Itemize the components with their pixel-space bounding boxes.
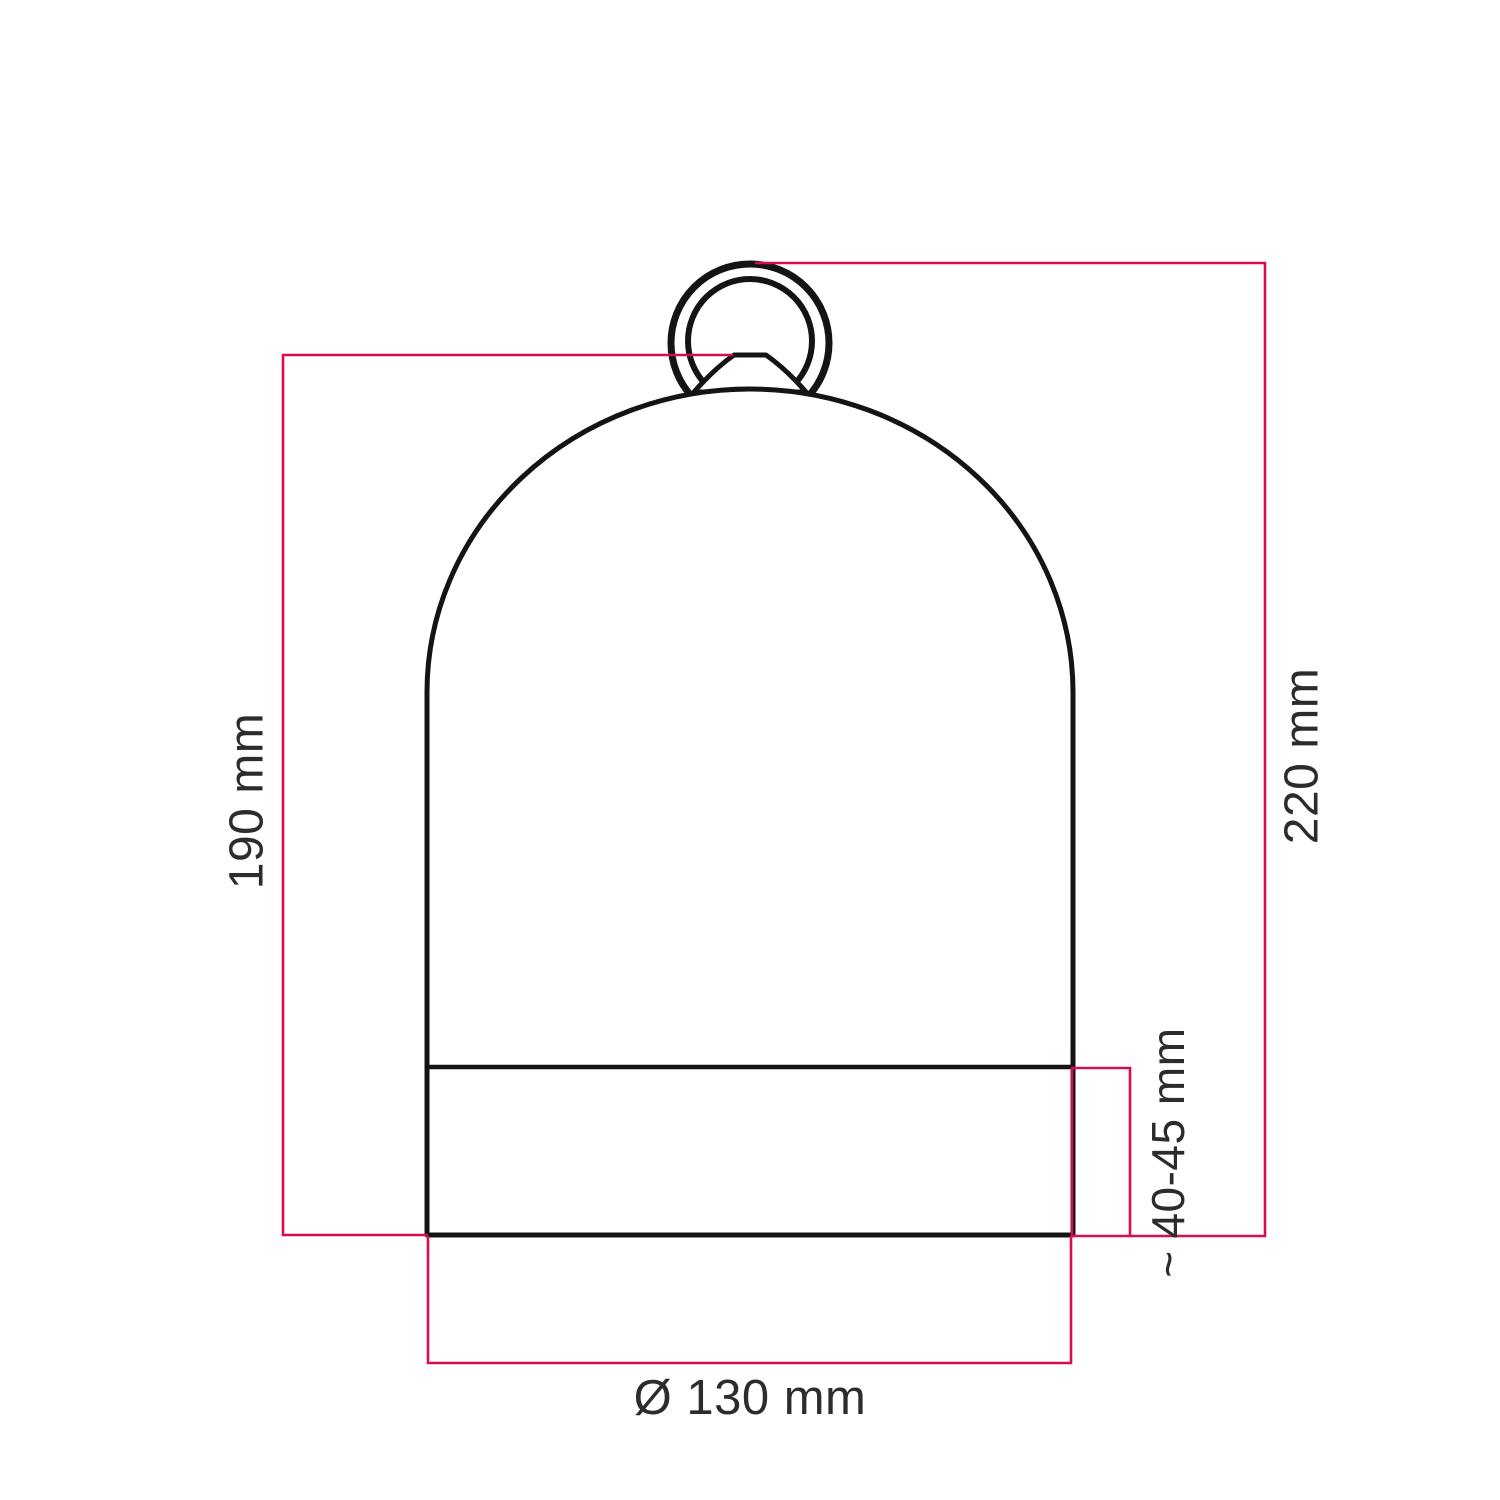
label-base-height: 40-45 mm xyxy=(1142,1027,1194,1238)
dimension-box-130mm xyxy=(428,1236,1071,1363)
dimension-drawing-page: 190 mm 220 mm 40-45 mm ~ Ø 130 mm xyxy=(0,0,1500,1500)
label-approx-symbol: ~ xyxy=(1142,1250,1194,1277)
label-total-height: 220 mm xyxy=(1276,668,1329,844)
bell-dome-body xyxy=(427,389,1073,1235)
lampshade-outline-group xyxy=(427,264,1073,1235)
label-diameter: Ø 130 mm xyxy=(634,1371,867,1425)
dimension-box-40-45mm xyxy=(1072,1068,1130,1236)
label-shade-height: 190 mm xyxy=(221,713,274,889)
ring-mount-cap xyxy=(694,355,806,392)
lampshade-dimension-diagram: 190 mm 220 mm 40-45 mm ~ Ø 130 mm xyxy=(0,0,1500,1500)
